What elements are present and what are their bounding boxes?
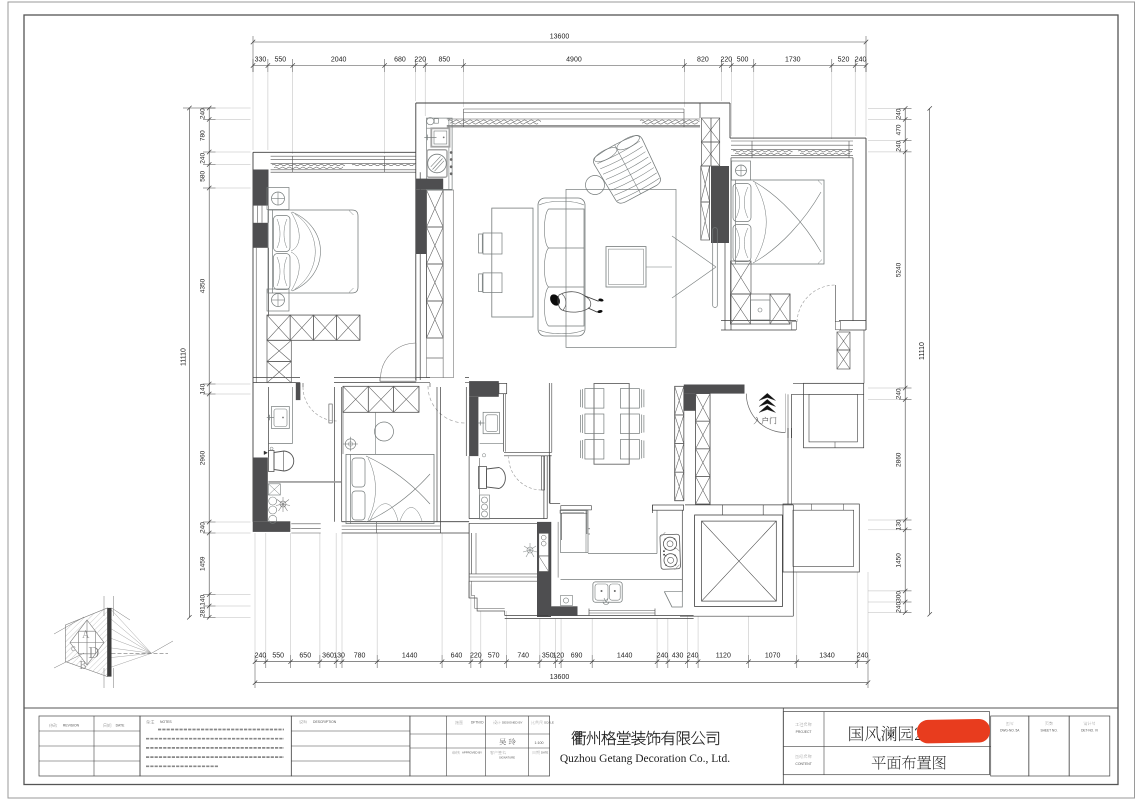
svg-text:680: 680: [394, 57, 406, 64]
svg-text:DESIGNED BY: DESIGNED BY: [502, 721, 523, 725]
svg-text:300: 300: [896, 591, 903, 602]
svg-text:240: 240: [687, 653, 699, 660]
svg-text:13600: 13600: [550, 34, 570, 41]
svg-text:240: 240: [200, 152, 207, 163]
svg-text:1340: 1340: [819, 653, 835, 660]
svg-text:220: 220: [470, 653, 482, 660]
svg-text:240: 240: [200, 108, 207, 119]
svg-text:4350: 4350: [200, 278, 207, 293]
svg-text:140: 140: [200, 594, 207, 605]
svg-text:1450: 1450: [896, 553, 903, 568]
svg-text:740: 740: [517, 653, 529, 660]
svg-text:240: 240: [896, 388, 903, 399]
svg-text:520: 520: [838, 57, 850, 64]
svg-text:4900: 4900: [566, 57, 582, 64]
svg-text:Quzhou Getang Decoration Co.,: Quzhou Getang Decoration Co., Ltd.: [560, 753, 730, 765]
svg-text:780: 780: [354, 653, 366, 660]
svg-text:DATE: DATE: [541, 751, 548, 755]
svg-text:470: 470: [896, 124, 903, 135]
svg-text:240: 240: [896, 601, 903, 612]
svg-text:APPROVED BY: APPROVED BY: [462, 751, 482, 755]
svg-text:CONTENT: CONTENT: [795, 762, 811, 766]
svg-text:240: 240: [200, 522, 207, 533]
svg-text:SCALE: SCALE: [544, 721, 554, 725]
svg-text:550: 550: [272, 653, 284, 660]
svg-text:240: 240: [657, 653, 669, 660]
svg-text:500: 500: [737, 57, 749, 64]
svg-text:1440: 1440: [617, 653, 633, 660]
svg-text:2860: 2860: [896, 452, 903, 467]
svg-text:130: 130: [896, 519, 903, 530]
svg-text:580: 580: [200, 170, 207, 181]
svg-text:1:100: 1:100: [535, 741, 544, 745]
svg-text:DATE: DATE: [116, 724, 126, 728]
svg-text:1459: 1459: [200, 556, 207, 571]
svg-text:1070: 1070: [765, 653, 781, 660]
svg-text:640: 640: [451, 653, 463, 660]
svg-text:SHEET NO.: SHEET NO.: [1040, 729, 1057, 733]
svg-text:DESCRIPTION: DESCRIPTION: [313, 720, 337, 724]
svg-text:240: 240: [857, 653, 869, 660]
svg-text:NOTES: NOTES: [160, 720, 172, 724]
svg-text:360: 360: [322, 653, 334, 660]
svg-text:240: 240: [855, 57, 867, 64]
svg-text:DET-NO. VI: DET-NO. VI: [1081, 729, 1098, 733]
svg-text:820: 820: [697, 57, 709, 64]
svg-text:690: 690: [571, 653, 583, 660]
svg-text:650: 650: [299, 653, 311, 660]
svg-text:240: 240: [896, 140, 903, 151]
svg-text:SIGNATURE: SIGNATURE: [499, 756, 515, 760]
svg-text:570: 570: [488, 653, 500, 660]
svg-text:550: 550: [274, 57, 286, 64]
svg-text:850: 850: [439, 57, 451, 64]
svg-text:780: 780: [200, 130, 207, 141]
svg-text:5240: 5240: [896, 262, 903, 277]
svg-text:240: 240: [255, 653, 267, 660]
svg-text:1440: 1440: [402, 653, 418, 660]
svg-text:2040: 2040: [331, 57, 347, 64]
svg-text:120: 120: [553, 653, 565, 660]
svg-text:1120: 1120: [716, 653, 731, 660]
svg-text:PROJECT: PROJECT: [796, 730, 812, 734]
svg-text:11110: 11110: [919, 342, 926, 360]
svg-text:140: 140: [200, 383, 207, 394]
svg-text:1730: 1730: [785, 57, 801, 64]
svg-text:DFTN ID: DFTN ID: [471, 721, 484, 725]
svg-text:11110: 11110: [181, 348, 188, 366]
svg-text:2960: 2960: [200, 450, 207, 465]
svg-text:220: 220: [721, 57, 733, 64]
svg-text:DWG-NO. 5A: DWG-NO. 5A: [1000, 729, 1020, 733]
svg-text:130: 130: [333, 653, 345, 660]
svg-text:13600: 13600: [550, 674, 570, 681]
svg-text:240: 240: [896, 108, 903, 119]
svg-text:220: 220: [414, 57, 426, 64]
svg-text:281: 281: [200, 606, 207, 617]
svg-text:REVISION: REVISION: [63, 724, 80, 728]
svg-text:430: 430: [672, 653, 684, 660]
svg-text:330: 330: [255, 57, 267, 64]
